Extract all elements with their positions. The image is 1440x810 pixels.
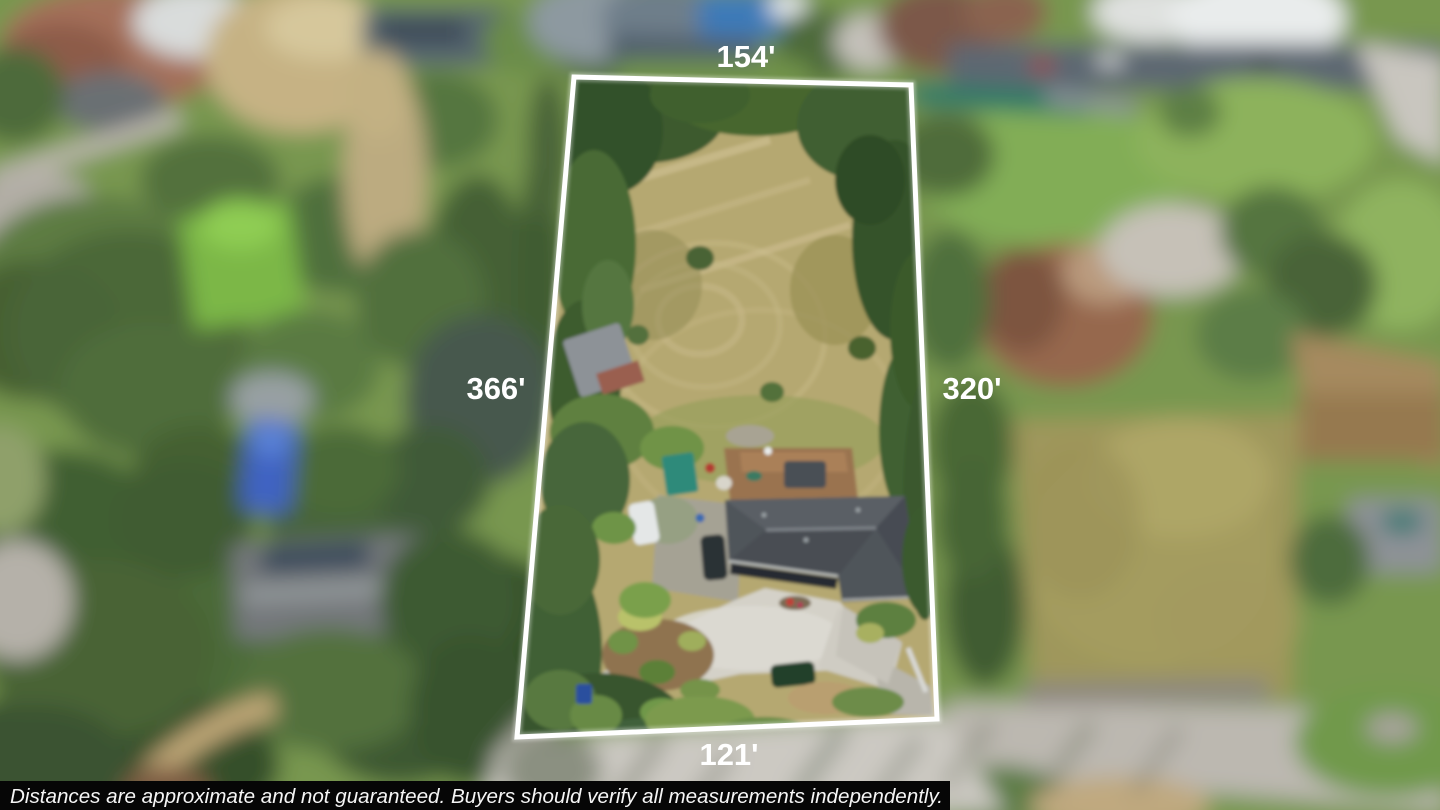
svg-text:121': 121' [699,737,758,772]
svg-text:Distances are approximate and: Distances are approximate and not guaran… [10,786,943,808]
svg-text:320': 320' [942,371,1001,406]
svg-text:366': 366' [466,371,525,406]
svg-text:154': 154' [716,39,775,74]
